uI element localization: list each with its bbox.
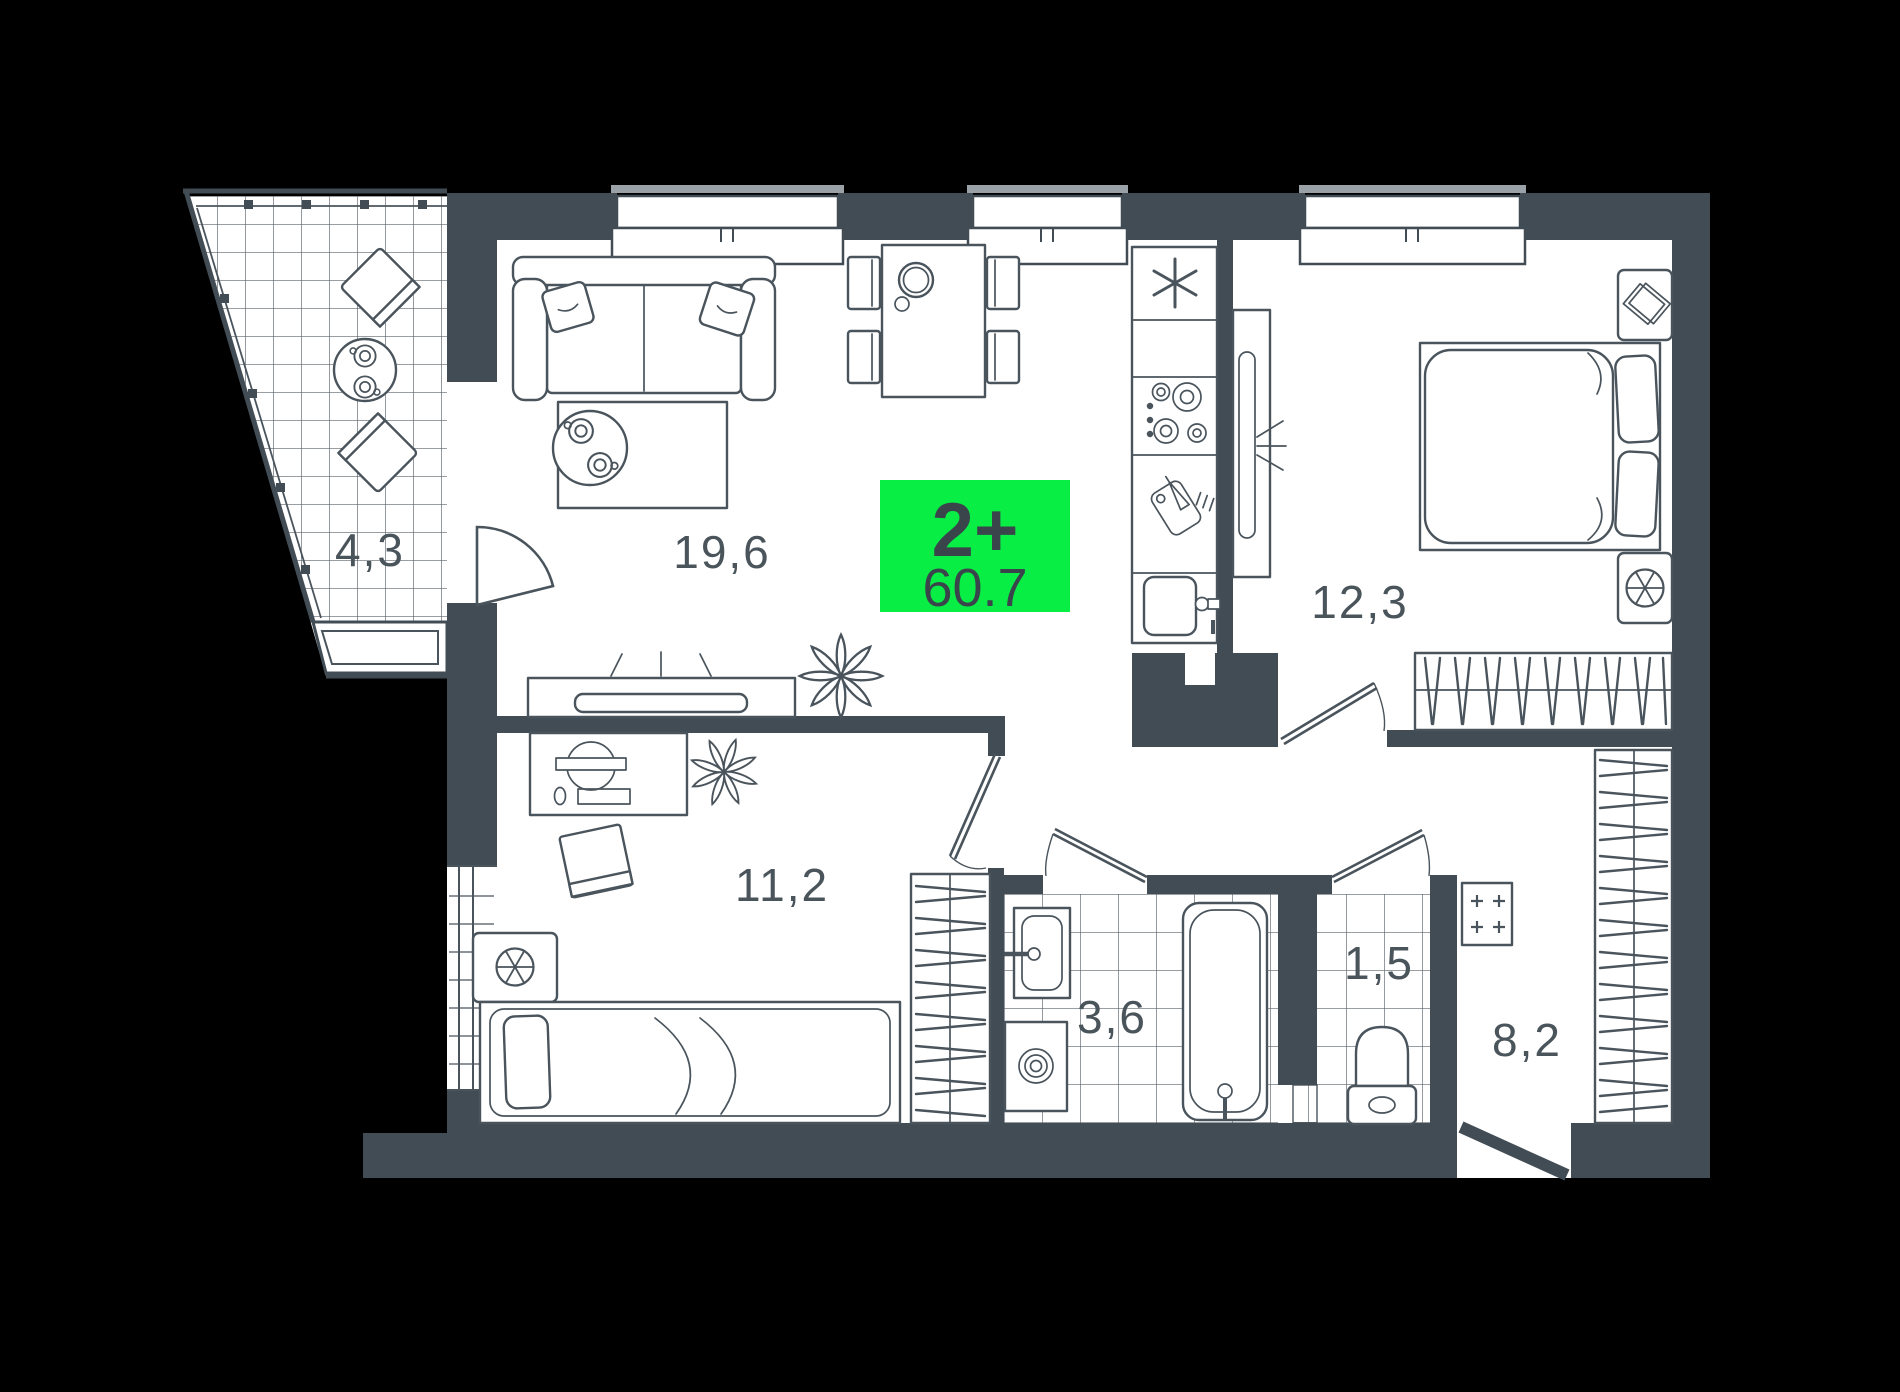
wall-niche (1185, 653, 1215, 685)
dining-table (882, 245, 985, 397)
nightstand (473, 933, 557, 1002)
apartment-badge: 2+ 60.7 (880, 480, 1070, 618)
window-living (611, 185, 844, 264)
wardrobe (1415, 653, 1672, 730)
plant-icon (800, 635, 883, 718)
electrical-panel-icon (1462, 883, 1512, 945)
bathroom-sink (1004, 908, 1070, 998)
bedroom-area-label: 11,2 (735, 859, 829, 911)
plant-pot-icon (497, 949, 534, 986)
plant-pot-icon (1627, 570, 1664, 607)
wardrobe (911, 874, 990, 1123)
bathtub (1183, 903, 1267, 1120)
window-dining (967, 185, 1128, 264)
nightstand (1618, 270, 1672, 340)
facade-windows (611, 185, 1526, 264)
desk-chair (559, 824, 633, 898)
balcony-area-label: 4,3 (335, 524, 405, 576)
floor-plan-page: 4,3 19,6 11,2 12,3 3,6 1,5 8,2 2+ 60.7 (0, 0, 1900, 1392)
toilet-area-label: 1,5 (1344, 937, 1414, 989)
living-room-area-label: 19,6 (673, 526, 771, 578)
sofa (513, 257, 775, 400)
toilet-fixtures (1348, 1027, 1416, 1124)
single-bed (480, 1002, 900, 1123)
wardrobe (1595, 750, 1672, 1123)
desk (530, 733, 687, 815)
window-master-bedroom (1299, 185, 1526, 264)
toilet-step-tiles (1293, 1085, 1317, 1123)
toilet-bowl (1356, 1027, 1408, 1086)
nightstand (1618, 553, 1672, 623)
master-bedroom-area-label: 12,3 (1311, 576, 1409, 628)
floor-plan: 4,3 19,6 11,2 12,3 3,6 1,5 8,2 2+ 60.7 (0, 0, 1900, 1392)
kitchen (1132, 247, 1220, 643)
washing-machine (1005, 1022, 1067, 1111)
hallway-area-label: 8,2 (1492, 1014, 1562, 1066)
bathroom-area-label: 3,6 (1077, 991, 1147, 1043)
badge-total-area: 60.7 (922, 558, 1027, 618)
balcony-window-sill (313, 622, 447, 673)
